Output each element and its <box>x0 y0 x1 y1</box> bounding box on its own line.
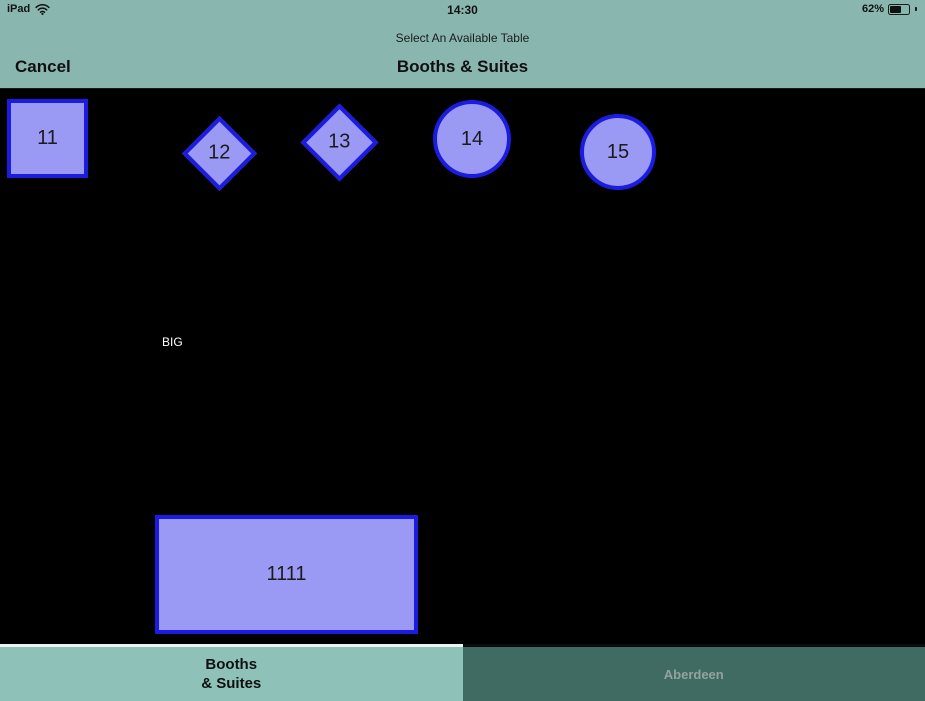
table-number: 13 <box>328 131 350 154</box>
table-12[interactable]: 12 <box>182 116 257 191</box>
tab-aberdeen[interactable]: Aberdeen <box>463 644 925 701</box>
table-11[interactable]: 11 <box>7 99 88 178</box>
table-1111[interactable]: 1111 <box>155 515 418 634</box>
table-13[interactable]: 13 <box>300 103 378 181</box>
floor-canvas: 11121314151111BIG <box>0 89 925 644</box>
table-number: 12 <box>208 142 230 165</box>
battery-percent: 62% <box>862 3 884 15</box>
table-select-screen: iPad 14:30 62% Select An Available Table… <box>0 0 925 701</box>
table-number: 1111 <box>266 563 306 586</box>
screen-subtitle: Select An Available Table <box>0 31 925 45</box>
page-title: Booths & Suites <box>0 57 925 77</box>
clock: 14:30 <box>0 3 925 17</box>
table-number: 14 <box>461 128 483 151</box>
room-tabbar: Booths & Suites Aberdeen <box>0 644 925 701</box>
status-right: 62% <box>862 3 917 15</box>
battery-cap <box>915 7 917 11</box>
battery-icon <box>888 4 910 15</box>
floor-label: BIG <box>162 335 183 349</box>
header: iPad 14:30 62% Select An Available Table… <box>0 0 925 89</box>
table-number: 15 <box>607 141 629 164</box>
tab-booths-suites[interactable]: Booths & Suites <box>0 644 463 701</box>
table-number: 11 <box>37 127 58 150</box>
table-14[interactable]: 14 <box>433 100 511 178</box>
table-15[interactable]: 15 <box>580 114 656 190</box>
